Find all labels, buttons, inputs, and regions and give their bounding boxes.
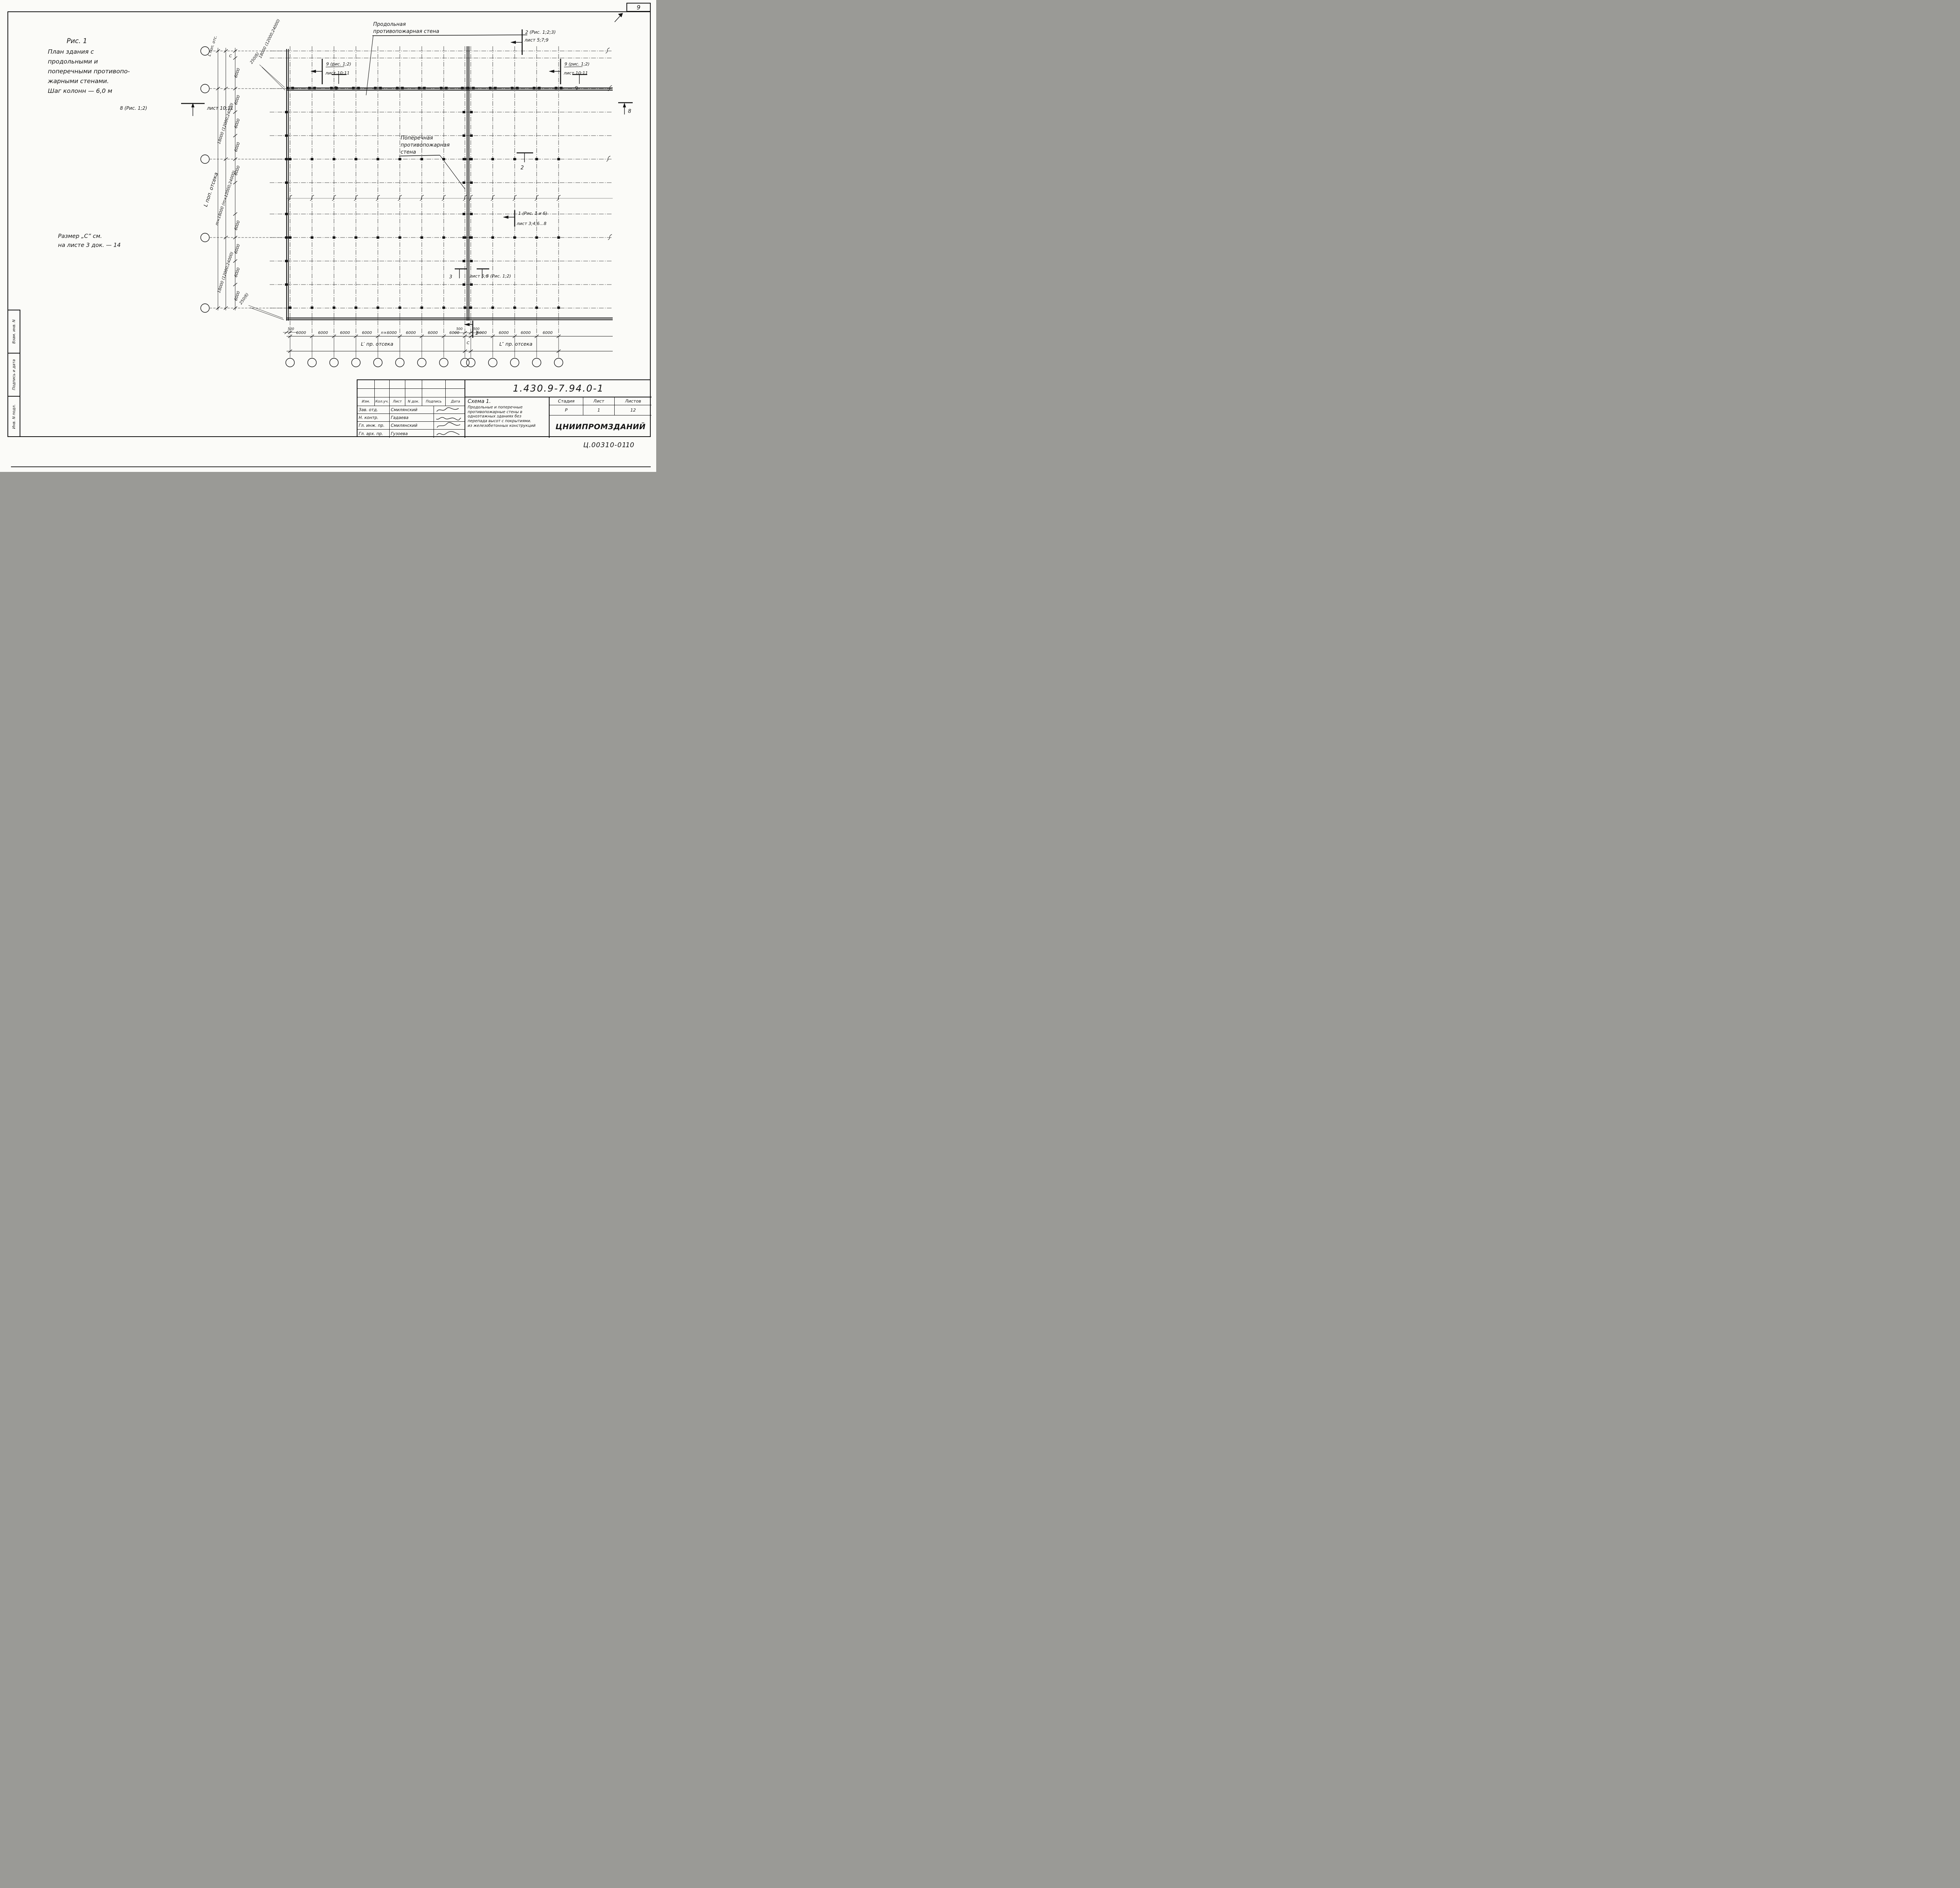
signature-cell (434, 414, 465, 422)
document-number: 1.430.9-7.94.0-1 (465, 380, 652, 397)
name-cell: Смилянский (390, 406, 434, 414)
sheet-number-box: 9 (626, 3, 651, 12)
sidebar-cell-podpis: Подпись и дата (7, 353, 20, 397)
signature-row: Гл. инж. пр. Смилянский (358, 422, 465, 430)
sidebar-label: Инв. N подл. (12, 404, 16, 429)
stage-value-cell: 1 (583, 405, 615, 415)
role-cell: Гл. арх. пр. (358, 430, 390, 438)
signature-cell (434, 422, 465, 430)
title-block-right: 1.430.9-7.94.0-1 Схема 1. Продольные и п… (465, 380, 652, 438)
figure-note-line: Шаг колонн — 6,0 м (48, 86, 189, 96)
signature-row: Н. контр. Гадаева (358, 414, 465, 422)
figure-note-line: Рис. 1 (67, 36, 189, 47)
sidebar-cell-inv: Инв. N подл. (7, 396, 20, 437)
signature-cell (434, 430, 465, 438)
name-cell: Гузоева (390, 430, 434, 438)
sidebar-cell-vzam: Взам. инв. N (7, 310, 20, 354)
scan-edge-line (11, 466, 651, 467)
role-cell: Гл. инж. пр. (358, 422, 390, 430)
sheet-number: 9 (637, 4, 641, 11)
name-cell: Смилянский (390, 422, 434, 430)
size-c-note-line: на листе 3 док. — 14 (58, 241, 187, 250)
scheme-title-line: одноэтажных зданиях без (468, 414, 548, 419)
revision-blank-row (358, 389, 465, 397)
figure-note-line: План здания с (48, 47, 189, 57)
scheme-title-line: перепада высот с покрытиями. (468, 419, 548, 424)
revision-header-cell: N док. (405, 397, 422, 406)
stage-header-cell: Стадия (550, 397, 583, 405)
revision-header-cell: Изм. (358, 397, 375, 406)
title-block: Изм. Кол.уч. Лист N док. Подпись Дата За… (357, 379, 651, 437)
signature (435, 430, 463, 437)
signature (435, 406, 463, 414)
scheme-title-line: Продольные и поперечные (468, 405, 548, 410)
role-cell: Н. контр. (358, 414, 390, 422)
signature (435, 414, 463, 421)
name-cell: Гадаева (390, 414, 434, 422)
role-cell: Зав. отд. (358, 406, 390, 414)
stage-header-cell: Листов (615, 397, 652, 405)
footer-page-number: 10 (626, 441, 634, 449)
stage-value-cell: Р (550, 405, 583, 415)
footer-code: Ц.00310-01 (583, 441, 626, 449)
figure-note: Рис. 1 План здания с продольными и попер… (48, 36, 189, 96)
sidebar-label: Взам. инв. N (12, 319, 16, 344)
revision-table: Изм. Кол.уч. Лист N док. Подпись Дата За… (358, 380, 465, 438)
organization-name: ЦНИИПРОМЗДАНИЙ (550, 415, 652, 438)
stage-value-row: Р 1 12 (550, 405, 652, 415)
revision-header-cell: Подпись (422, 397, 446, 406)
signature-cell (434, 406, 465, 414)
signature (435, 422, 463, 429)
drawing-sheet: 600060006000600060006000600060006000С180… (0, 0, 656, 472)
signature-row: Зав. отд. Смилянский (358, 406, 465, 414)
revision-header-cell: Лист (390, 397, 405, 406)
scheme-title-line: Схема 1. (468, 399, 548, 404)
revision-header-cell: Кол.уч. (375, 397, 390, 406)
scheme-title-line: противопожарные стены в (468, 410, 548, 415)
size-c-note-line: Размер „С” см. (58, 232, 187, 241)
scheme-title-line: из железобетонных конструкций (468, 424, 548, 428)
scheme-title: Схема 1. Продольные и поперечные противо… (465, 397, 550, 438)
revision-header-cell: Дата (446, 397, 465, 406)
stage-value-cell: 12 (615, 405, 652, 415)
size-c-note: Размер „С” см. на листе 3 док. — 14 (58, 232, 187, 250)
signature-row: Гл. арх. пр. Гузоева (358, 430, 465, 438)
revision-blank-row (358, 380, 465, 389)
stage-header-row: Стадия Лист Листов (550, 397, 652, 405)
sidebar-label: Подпись и дата (12, 359, 16, 390)
figure-note-line: жарными стенами. (48, 76, 189, 86)
figure-note-line: продольными и (48, 57, 189, 67)
revision-header-row: Изм. Кол.уч. Лист N док. Подпись Дата (358, 397, 465, 406)
figure-note-line: поперечными противопо- (48, 67, 189, 76)
stage-header-cell: Лист (583, 397, 615, 405)
